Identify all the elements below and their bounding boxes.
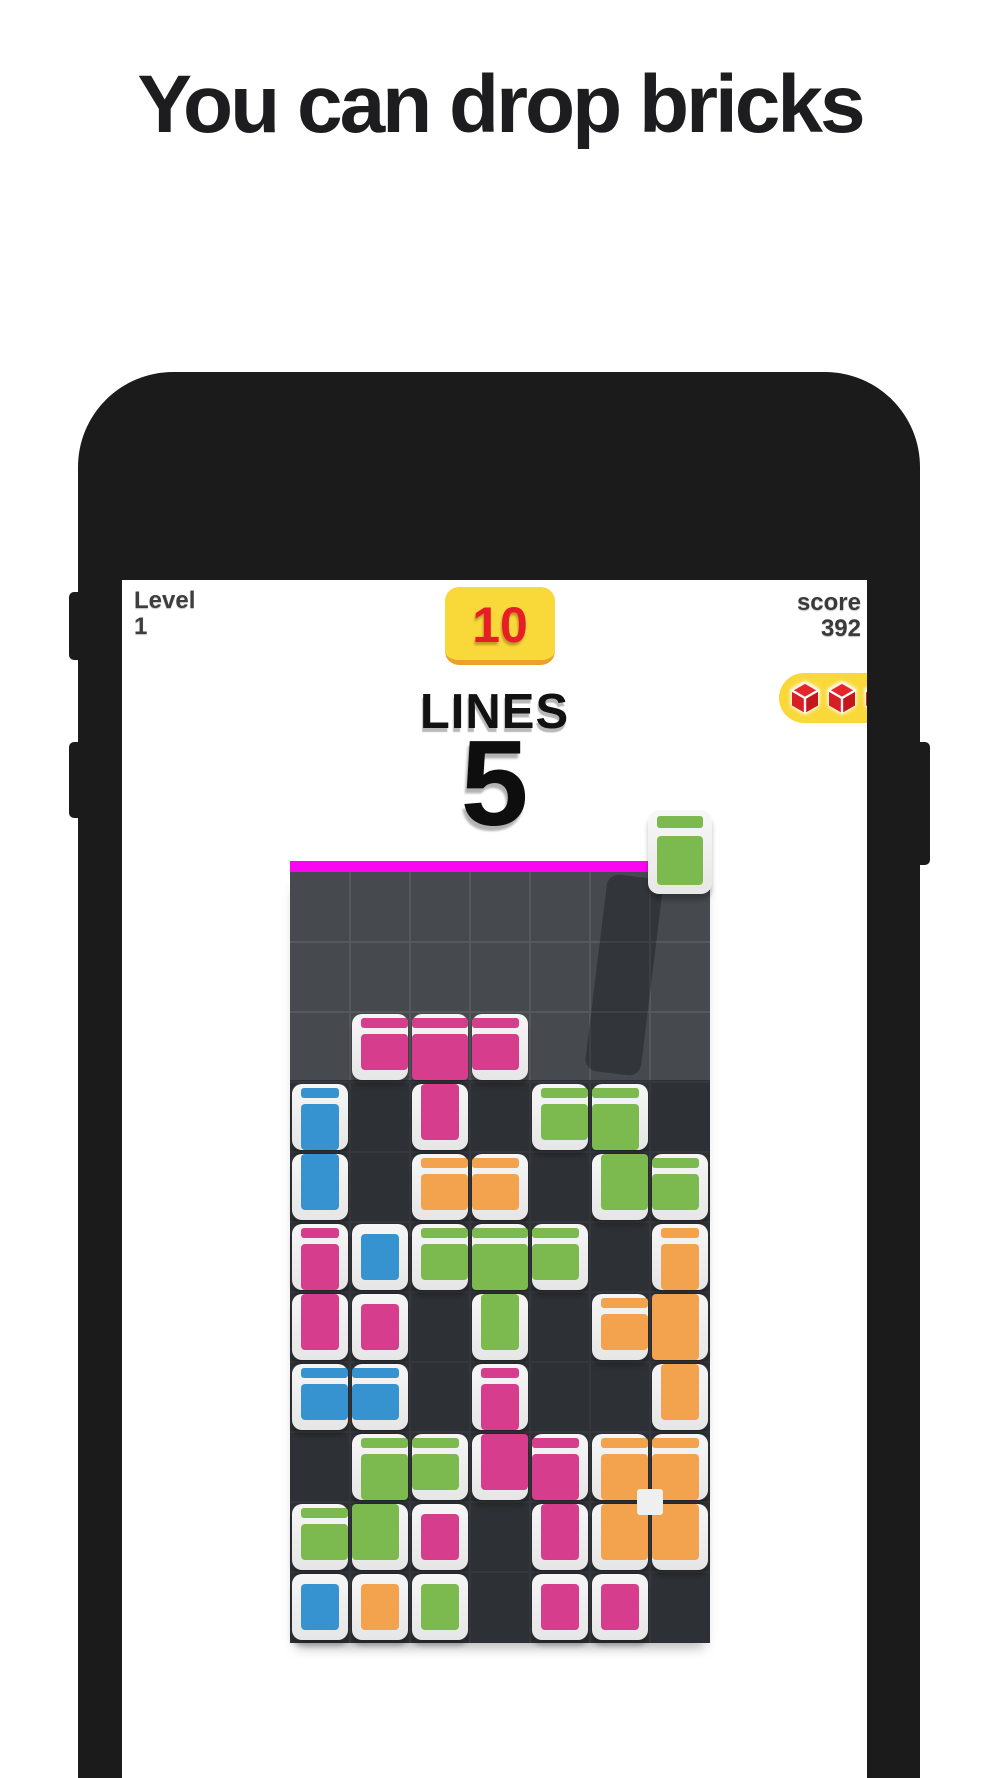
- level-label: Level: [134, 588, 195, 614]
- falling-brick[interactable]: [648, 810, 712, 894]
- level-indicator: Level 1: [134, 588, 195, 640]
- game-screen: Level 1 score 392 10 LINES 5: [122, 580, 867, 1778]
- drop-limit-line: [290, 861, 710, 872]
- falling-brick-top-face: [657, 816, 703, 828]
- lines-count: 5: [122, 708, 867, 858]
- game-board[interactable]: [290, 872, 710, 1643]
- power-button: [920, 742, 930, 865]
- score-label: score: [797, 590, 861, 616]
- level-value: 1: [134, 614, 195, 640]
- score-value: 392: [797, 616, 861, 642]
- piece-pink-bottom-brick-2[interactable]: [290, 872, 710, 1643]
- brick-face: [601, 1584, 639, 1630]
- lines-goal-badge: 10: [445, 587, 555, 665]
- page-title: You can drop bricks: [0, 58, 1000, 152]
- brick-cube-icon: [787, 680, 823, 716]
- app-store-screenshot: You can drop bricks Level 1 score 392 10…: [0, 0, 1000, 1778]
- brick-cube-icon: [824, 680, 860, 716]
- falling-brick-face: [657, 836, 703, 885]
- bricks-booster-button[interactable]: [779, 673, 867, 723]
- score-indicator: score 392: [797, 590, 861, 642]
- brick-cube-icon: [861, 680, 867, 716]
